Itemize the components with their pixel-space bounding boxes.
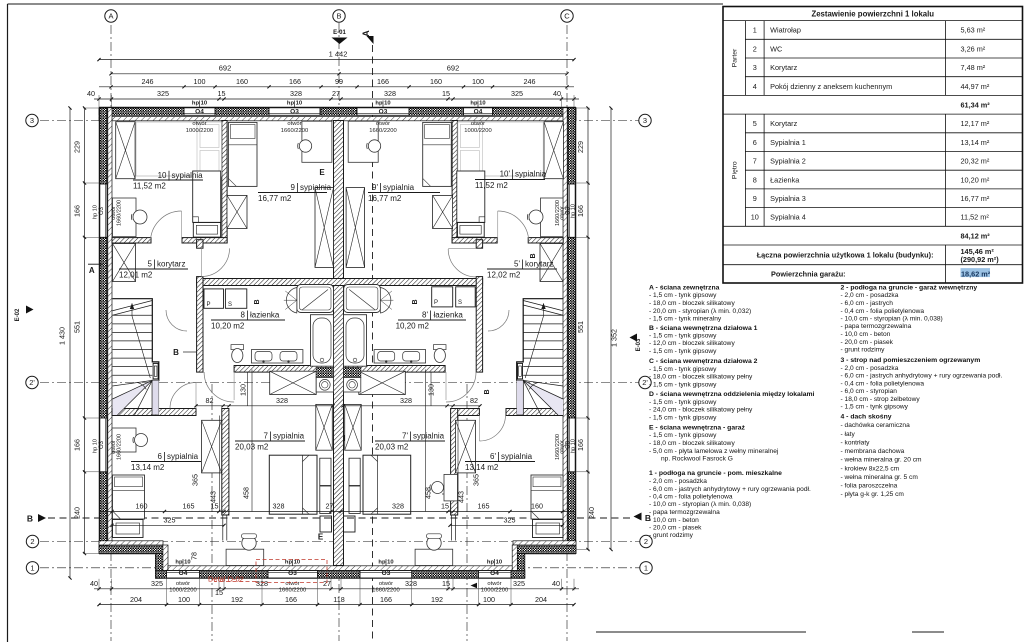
svg-text:15: 15 <box>441 502 449 511</box>
svg-text:3,26 m²: 3,26 m² <box>961 44 986 53</box>
svg-text:- 18,0 cm - strop żelbetowy: - 18,0 cm - strop żelbetowy <box>841 396 921 403</box>
svg-text:325: 325 <box>151 579 163 588</box>
svg-text:5: 5 <box>753 119 757 128</box>
svg-text:- wełna mineralna gr. 5 cm: - wełna mineralna gr. 5 cm <box>841 474 919 481</box>
svg-text:otwór: otwór <box>176 581 190 587</box>
svg-text:4: 4 <box>753 82 757 91</box>
svg-text:1660/2200: 1660/2200 <box>555 200 561 226</box>
svg-text:20,03 m2: 20,03 m2 <box>235 442 269 451</box>
svg-text:192: 192 <box>231 595 243 604</box>
svg-text:9': 9' <box>372 183 378 192</box>
svg-text:O4: O4 <box>195 108 204 115</box>
svg-text:- płyta g-k gr. 1,25 cm: - płyta g-k gr. 1,25 cm <box>841 491 905 498</box>
svg-text:Korytarz: Korytarz <box>770 63 798 72</box>
svg-text:13,14 m²: 13,14 m² <box>961 138 990 147</box>
svg-text:229: 229 <box>576 141 585 153</box>
svg-text:8: 8 <box>241 311 246 320</box>
svg-text:7: 7 <box>753 157 757 166</box>
svg-text:1000/2200: 1000/2200 <box>481 588 508 594</box>
svg-text:sypialnia: sypialnia <box>501 452 533 461</box>
svg-text:10,20 m²: 10,20 m² <box>961 175 990 184</box>
svg-text:1 - podłoga na gruncie - pom.: 1 - podłoga na gruncie - pom. mieszkalne <box>649 470 782 477</box>
svg-text:692: 692 <box>447 64 460 73</box>
svg-text:328: 328 <box>392 502 404 511</box>
svg-text:16,77 m²: 16,77 m² <box>961 194 990 203</box>
svg-text:Zestawienie powierzchni 1 loka: Zestawienie powierzchni 1 lokalu <box>811 10 934 19</box>
svg-text:Parter: Parter <box>732 48 739 67</box>
svg-text:40: 40 <box>552 579 560 588</box>
svg-text:- 1,5 cm - tynk gipsowy: - 1,5 cm - tynk gipsowy <box>649 348 717 355</box>
svg-text:O3: O3 <box>99 440 105 449</box>
svg-text:16,77 m2: 16,77 m2 <box>258 194 292 203</box>
svg-text:WC: WC <box>770 44 782 53</box>
svg-text:O4: O4 <box>179 570 188 577</box>
svg-text:443: 443 <box>209 491 218 503</box>
svg-text:B: B <box>484 389 491 394</box>
svg-text:10: 10 <box>158 171 167 180</box>
svg-text:B: B <box>173 348 179 357</box>
svg-text:P: P <box>207 302 211 308</box>
svg-text:166: 166 <box>576 439 585 451</box>
svg-text:- papa termozgrzewalna: - papa termozgrzewalna <box>841 323 912 330</box>
svg-text:551: 551 <box>576 321 585 333</box>
svg-text:5': 5' <box>514 260 520 269</box>
svg-text:328: 328 <box>384 89 396 98</box>
svg-text:9: 9 <box>753 194 757 203</box>
svg-text:5,63 m²: 5,63 m² <box>961 26 986 35</box>
svg-text:365: 365 <box>191 474 200 486</box>
svg-text:- kontrłaty: - kontrłaty <box>841 440 871 447</box>
svg-text:- 1,5 cm - tynk gipsowy: - 1,5 cm - tynk gipsowy <box>649 333 717 340</box>
svg-text:E-01: E-01 <box>333 30 346 36</box>
svg-text:10,20 m2: 10,20 m2 <box>211 321 245 330</box>
svg-text:2': 2' <box>642 378 648 387</box>
svg-text:- grunt rodzimy: - grunt rodzimy <box>841 347 886 354</box>
svg-text:Łączna powierzchnia użytkowa 1: Łączna powierzchnia użytkowa 1 lokalu (b… <box>757 251 934 260</box>
svg-text:166: 166 <box>285 595 297 604</box>
svg-text:sypialnia: sypialnia <box>515 170 547 179</box>
svg-text:20,32 m²: 20,32 m² <box>961 157 990 166</box>
svg-text:Sypialnia 4: Sypialnia 4 <box>770 213 806 222</box>
svg-text:- 10,0 cm - beton: - 10,0 cm - beton <box>649 517 699 524</box>
svg-text:160: 160 <box>136 502 148 511</box>
svg-text:40: 40 <box>90 579 98 588</box>
svg-text:- 6,0 cm - jastrych anhydrytow: - 6,0 cm - jastrych anhydrytowy + rury o… <box>649 486 811 493</box>
svg-text:78: 78 <box>190 552 199 560</box>
svg-text:1: 1 <box>30 563 34 572</box>
svg-text:sypialnia: sypialnia <box>273 432 305 441</box>
svg-text:- 0,4 cm - folia polietylenowa: - 0,4 cm - folia polietylenowa <box>841 308 925 315</box>
svg-text:5: 5 <box>148 260 153 269</box>
svg-text:korytarz: korytarz <box>157 260 185 269</box>
svg-text:Sypialnia 3: Sypialnia 3 <box>770 194 806 203</box>
svg-text:204: 204 <box>130 595 142 604</box>
svg-text:15: 15 <box>442 579 450 588</box>
svg-text:- 18,0 cm - bloczek silikatowy: - 18,0 cm - bloczek silikatowy <box>649 440 735 447</box>
svg-text:hp 10: hp 10 <box>93 205 99 219</box>
svg-text:O4: O4 <box>490 570 499 577</box>
svg-text:6': 6' <box>490 452 496 461</box>
svg-text:- 24,0 cm - bloczek silikatowy: - 24,0 cm - bloczek silikatowy pełny <box>649 407 753 414</box>
svg-text:328: 328 <box>290 89 302 98</box>
svg-text:O3: O3 <box>379 108 388 115</box>
svg-text:1000/2200: 1000/2200 <box>169 588 196 594</box>
svg-text:Powierzchnia garażu:: Powierzchnia garażu: <box>771 270 846 279</box>
svg-text:- 0,4 cm - folia polietylenowa: - 0,4 cm - folia polietylenowa <box>841 380 925 387</box>
svg-text:A: A <box>108 12 113 21</box>
svg-text:- 18,0 cm - bloczek silikatowy: - 18,0 cm - bloczek silikatowy <box>649 300 735 307</box>
svg-text:- papa termozgrzewalna: - papa termozgrzewalna <box>649 509 720 516</box>
svg-text:99: 99 <box>335 77 343 86</box>
svg-text:otwór: otwór <box>471 121 485 127</box>
svg-text:- 1,5 cm - tynk gipsowy: - 1,5 cm - tynk gipsowy <box>649 381 717 388</box>
svg-text:3: 3 <box>30 116 34 125</box>
svg-text:- łaty: - łaty <box>841 431 856 438</box>
svg-text:2: 2 <box>644 537 648 546</box>
svg-text:- 6,0 cm - jastrych anhydrytow: - 6,0 cm - jastrych anhydrytowy + rury o… <box>841 373 1003 380</box>
svg-text:166: 166 <box>576 205 585 217</box>
svg-text:Detal D-02: Detal D-02 <box>208 575 244 584</box>
svg-text:sypialnia: sypialnia <box>172 171 204 180</box>
svg-text:61,34 m²: 61,34 m² <box>961 100 991 109</box>
svg-text:1: 1 <box>644 563 648 572</box>
svg-text:328: 328 <box>276 396 288 405</box>
svg-text:2': 2' <box>29 378 35 387</box>
svg-text:B: B <box>336 12 341 21</box>
svg-text:- 5,0 cm - płyta lamelowa z we: - 5,0 cm - płyta lamelowa z wełny minera… <box>649 448 779 455</box>
svg-text:166: 166 <box>73 205 82 217</box>
svg-text:B: B <box>412 299 419 304</box>
svg-text:166: 166 <box>73 439 82 451</box>
svg-text:1660/2200: 1660/2200 <box>279 588 306 594</box>
svg-text:11,52 m2: 11,52 m2 <box>475 181 508 190</box>
svg-text:692: 692 <box>219 64 232 73</box>
svg-text:Wiatrołap: Wiatrołap <box>770 26 801 35</box>
svg-text:8': 8' <box>422 311 428 320</box>
svg-text:40: 40 <box>87 89 95 98</box>
svg-text:12,02 m2: 12,02 m2 <box>487 270 521 279</box>
svg-text:Piętro: Piętro <box>732 161 739 179</box>
svg-text:7,48 m²: 7,48 m² <box>961 63 986 72</box>
svg-text:np. Rockwool Fasrock G: np. Rockwool Fasrock G <box>661 456 733 463</box>
svg-text:- 18,0 cm - bloczek silikatowy: - 18,0 cm - bloczek silikatowy pełny <box>649 374 753 381</box>
svg-text:3: 3 <box>753 63 757 72</box>
svg-text:328: 328 <box>400 396 412 405</box>
svg-text:- 1,5 cm - tynk gipsowy: - 1,5 cm - tynk gipsowy <box>649 432 717 439</box>
svg-text:325: 325 <box>504 516 516 525</box>
svg-text:- 20,0 cm - piasek: - 20,0 cm - piasek <box>649 525 702 532</box>
svg-text:204: 204 <box>535 595 547 604</box>
svg-text:- folia paroszczelna: - folia paroszczelna <box>841 483 898 490</box>
svg-text:(290,92 m²): (290,92 m²) <box>961 255 1000 264</box>
svg-text:1000/2200: 1000/2200 <box>186 128 213 134</box>
svg-text:27: 27 <box>326 502 334 511</box>
svg-text:84,12 m²: 84,12 m² <box>961 231 991 240</box>
svg-text:sypialnia: sypialnia <box>383 183 415 192</box>
svg-text:- 1,5 cm - tynk gipsowy: - 1,5 cm - tynk gipsowy <box>649 399 717 406</box>
svg-text:Łazienka: Łazienka <box>770 175 800 184</box>
svg-text:B - ściana wewnętrzna działowa: B - ściana wewnętrzna działowa 1 <box>649 325 758 332</box>
svg-text:Sypialnia 2: Sypialnia 2 <box>770 157 806 166</box>
svg-text:B: B <box>27 514 33 524</box>
svg-text:328: 328 <box>405 579 417 588</box>
svg-text:443: 443 <box>457 491 466 503</box>
svg-text:2: 2 <box>753 44 757 53</box>
svg-text:1000/2200: 1000/2200 <box>464 128 491 134</box>
svg-text:E - ściana wewnętrzna - garaż: E - ściana wewnętrzna - garaż <box>649 425 746 432</box>
svg-text:100: 100 <box>194 77 206 86</box>
svg-text:7: 7 <box>264 432 269 441</box>
svg-text:- 1,5 cm - tynk gipsowy: - 1,5 cm - tynk gipsowy <box>841 404 909 411</box>
svg-text:- 0,4 cm - folia polietylenowa: - 0,4 cm - folia polietylenowa <box>649 494 733 501</box>
svg-text:130: 130 <box>239 384 248 396</box>
svg-text:40: 40 <box>553 89 561 98</box>
svg-text:1660/2200: 1660/2200 <box>372 588 399 594</box>
svg-text:246: 246 <box>524 77 536 86</box>
svg-text:118: 118 <box>333 595 344 604</box>
svg-text:325: 325 <box>511 89 523 98</box>
svg-text:6: 6 <box>158 452 163 461</box>
svg-text:- dachówka ceramiczna: - dachówka ceramiczna <box>841 422 911 429</box>
svg-text:otwór: otwór <box>379 581 393 587</box>
svg-text:E: E <box>318 533 324 542</box>
svg-text:27: 27 <box>332 89 340 98</box>
svg-text:- 1,5 cm - tynk mineralny: - 1,5 cm - tynk mineralny <box>649 316 722 323</box>
svg-text:1 352: 1 352 <box>610 329 619 347</box>
svg-text:4 - dach skośny: 4 - dach skośny <box>841 414 892 421</box>
svg-text:1660/2200: 1660/2200 <box>555 434 561 460</box>
svg-text:192: 192 <box>431 595 443 604</box>
svg-text:160: 160 <box>430 77 442 86</box>
svg-text:- membrana dachowa: - membrana dachowa <box>841 448 905 455</box>
svg-text:O3: O3 <box>566 440 572 449</box>
svg-text:130: 130 <box>427 384 436 396</box>
svg-text:160: 160 <box>531 502 543 511</box>
svg-text:- wełna mineralna gr. 20 cm: - wełna mineralna gr. 20 cm <box>841 457 922 464</box>
svg-text:10,20 m2: 10,20 m2 <box>396 321 430 330</box>
svg-text:otwór: otwór <box>287 121 301 127</box>
svg-text:2 - podłoga na gruncie - garaż: 2 - podłoga na gruncie - garaż wewnętrzn… <box>841 285 978 292</box>
svg-text:C: C <box>564 12 570 21</box>
svg-text:3 - strop nad pomieszczeniem o: 3 - strop nad pomieszczeniem ogrzewanym <box>841 357 981 364</box>
svg-text:- 1,5 cm - tynk gipsowy: - 1,5 cm - tynk gipsowy <box>649 366 717 373</box>
svg-text:otwór: otwór <box>376 121 390 127</box>
svg-text:1660/2200: 1660/2200 <box>281 128 308 134</box>
svg-text:229: 229 <box>73 141 82 153</box>
svg-text:S: S <box>458 300 462 306</box>
svg-text:44,97 m²: 44,97 m² <box>961 82 990 91</box>
svg-text:328: 328 <box>273 502 285 511</box>
svg-text:18,62 m²: 18,62 m² <box>961 270 991 279</box>
svg-text:- 20,0 cm - styropian (λ min.: - 20,0 cm - styropian (λ min. 0,032) <box>649 308 751 315</box>
svg-text:C - ściana wewnętrzna działowa: C - ściana wewnętrzna działowa 2 <box>649 358 758 365</box>
svg-text:458: 458 <box>424 487 433 499</box>
svg-text:100: 100 <box>483 595 495 604</box>
svg-text:1 430: 1 430 <box>58 327 67 345</box>
svg-text:246: 246 <box>142 77 154 86</box>
svg-text:12,01 m2: 12,01 m2 <box>119 270 153 279</box>
svg-text:365: 365 <box>472 474 481 486</box>
svg-text:13,14 m2: 13,14 m2 <box>131 463 165 472</box>
svg-text:11,52 m²: 11,52 m² <box>961 213 990 222</box>
svg-text:korytarz: korytarz <box>525 260 553 269</box>
svg-text:325: 325 <box>164 516 176 525</box>
svg-text:sypialnia: sypialnia <box>167 452 199 461</box>
svg-text:1: 1 <box>753 26 757 35</box>
svg-text:82: 82 <box>470 396 478 405</box>
svg-text:11,52 m2: 11,52 m2 <box>133 181 166 190</box>
svg-text:325: 325 <box>157 89 169 98</box>
svg-text:3: 3 <box>643 116 647 125</box>
svg-text:łazienka: łazienka <box>250 311 280 320</box>
svg-text:551: 551 <box>73 321 82 333</box>
svg-text:100: 100 <box>472 77 484 86</box>
svg-text:- 20,0 cm - piasek: - 20,0 cm - piasek <box>841 339 894 346</box>
svg-text:A - ściana zewnętrzna: A - ściana zewnętrzna <box>649 285 720 292</box>
svg-text:12,17 m²: 12,17 m² <box>961 119 990 128</box>
svg-text:P: P <box>434 300 438 306</box>
svg-text:łazienka: łazienka <box>434 311 464 320</box>
svg-text:7': 7' <box>402 432 408 441</box>
svg-text:A: A <box>89 266 95 275</box>
svg-text:- 12,0 cm - bloczek silikatowy: - 12,0 cm - bloczek silikatowy <box>649 340 735 347</box>
svg-text:240: 240 <box>587 507 596 519</box>
svg-text:10': 10' <box>500 170 511 179</box>
svg-text:165: 165 <box>183 502 195 511</box>
svg-text:- 10,0 cm - beton: - 10,0 cm - beton <box>841 331 891 338</box>
svg-text:1 442: 1 442 <box>329 50 348 59</box>
svg-text:6: 6 <box>753 138 757 147</box>
svg-text:15: 15 <box>218 89 226 98</box>
svg-text:O4: O4 <box>474 108 483 115</box>
svg-text:458: 458 <box>242 487 251 499</box>
svg-text:otwór: otwór <box>192 121 206 127</box>
svg-text:10: 10 <box>751 213 759 222</box>
svg-text:9: 9 <box>291 183 296 192</box>
svg-text:1660/2200: 1660/2200 <box>117 200 123 226</box>
svg-text:13,14 m2: 13,14 m2 <box>465 463 499 472</box>
svg-text:1660/2200: 1660/2200 <box>117 434 123 460</box>
svg-text:- 2,0 cm - posadzka: - 2,0 cm - posadzka <box>841 292 899 299</box>
svg-text:S: S <box>228 302 232 308</box>
svg-text:- 2,0 cm - posadzka: - 2,0 cm - posadzka <box>649 478 707 485</box>
svg-text:8: 8 <box>753 175 757 184</box>
svg-text:A: A <box>361 30 371 37</box>
svg-text:1660/2200: 1660/2200 <box>369 128 396 134</box>
svg-text:E: E <box>319 168 325 177</box>
svg-text:165: 165 <box>478 502 490 511</box>
svg-text:2: 2 <box>30 537 34 546</box>
svg-text:B: B <box>254 299 261 304</box>
svg-text:15: 15 <box>442 89 450 98</box>
svg-text:Sypialnia 1: Sypialnia 1 <box>770 138 806 147</box>
svg-text:100: 100 <box>178 595 190 604</box>
svg-text:Korytarz: Korytarz <box>770 119 798 128</box>
svg-text:O3: O3 <box>99 206 105 215</box>
svg-text:82: 82 <box>206 396 214 405</box>
svg-text:O3: O3 <box>382 570 391 577</box>
svg-text:- 10,0 cm - styropian (λ min.: - 10,0 cm - styropian (λ min. 0,038) <box>841 316 943 323</box>
svg-text:- grunt rodzimy: - grunt rodzimy <box>649 532 694 539</box>
svg-text:- 1,5 cm - tynk gipsowy: - 1,5 cm - tynk gipsowy <box>649 414 717 421</box>
svg-text:- 6,0 cm - jastrych: - 6,0 cm - jastrych <box>841 300 894 307</box>
svg-text:- 10,0 cm - styropian (λ min.: - 10,0 cm - styropian (λ min. 0,038) <box>649 501 751 508</box>
svg-text:O3: O3 <box>290 108 299 115</box>
svg-text:B: B <box>530 253 537 258</box>
svg-text:20,03 m2: 20,03 m2 <box>375 442 409 451</box>
svg-text:sypialnia: sypialnia <box>413 432 445 441</box>
svg-text:otwór: otwór <box>487 581 501 587</box>
svg-text:hp 10: hp 10 <box>93 439 99 453</box>
svg-text:166: 166 <box>380 595 392 604</box>
svg-text:D - ściana wewnętrzna oddziele: D - ściana wewnętrzna oddzielenia między… <box>649 391 815 398</box>
svg-text:otwór: otwór <box>285 581 299 587</box>
svg-text:160: 160 <box>236 77 248 86</box>
svg-text:166: 166 <box>377 77 389 86</box>
svg-text:O3: O3 <box>288 570 297 577</box>
svg-text:16,77 m2: 16,77 m2 <box>368 194 402 203</box>
svg-text:- 2,0 cm - posadzka: - 2,0 cm - posadzka <box>841 365 899 372</box>
svg-text:E-02: E-02 <box>15 308 21 321</box>
svg-text:325: 325 <box>513 579 525 588</box>
svg-text:- krokiew 8x22,5 cm: - krokiew 8x22,5 cm <box>841 465 900 472</box>
svg-text:- 1,5 cm - tynk gipsowy: - 1,5 cm - tynk gipsowy <box>649 292 717 299</box>
svg-text:O3: O3 <box>566 206 572 215</box>
svg-text:sypialnia: sypialnia <box>300 183 332 192</box>
svg-text:166: 166 <box>289 77 301 86</box>
svg-text:240: 240 <box>73 507 82 519</box>
svg-text:Pokój dzienny z aneksem kuchen: Pokój dzienny z aneksem kuchennym <box>770 82 892 91</box>
svg-text:- 6,0 cm - styropian: - 6,0 cm - styropian <box>841 388 898 395</box>
